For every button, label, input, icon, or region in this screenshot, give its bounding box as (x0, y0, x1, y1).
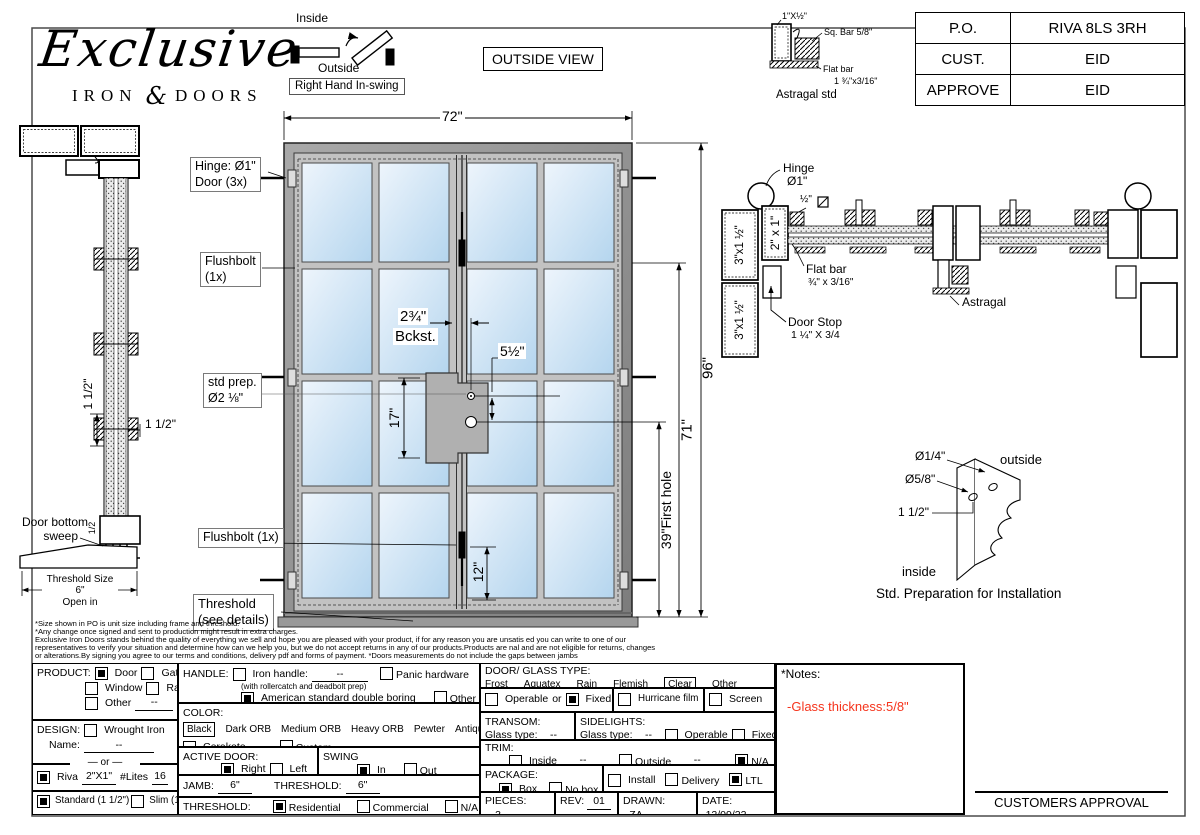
color-dark-orb[interactable]: Dark ORB (225, 723, 271, 736)
checkbox-american-boring[interactable] (241, 692, 254, 703)
pieces-section: PIECES: 3 (480, 792, 555, 815)
handle-section: HANDLE: Iron handle: -- Panic hardware (… (178, 663, 480, 703)
prep-title: Std. Preparation for Installation (876, 586, 1061, 602)
po-value: RIVA 8LS 3RH (1011, 13, 1185, 44)
swing-inside-label: Inside (296, 12, 328, 26)
flushbolt-callout-top: Flushbolt(1x) (200, 252, 261, 287)
hinge-callout: Hinge: Ø1"Door (3x) (190, 157, 261, 192)
checkbox-handle-other[interactable] (434, 691, 447, 703)
notes-glass-thickness: -Glass thickness:5/8" (787, 699, 959, 716)
transom-section: TRANSOM: Glass type: -- (480, 712, 575, 740)
threshold-size-label: Threshold Size (42, 574, 118, 586)
threshold-size-value: 6" (42, 585, 118, 597)
glass-aquatex[interactable]: Aquatex (524, 678, 561, 688)
rs-half-square: ½" (800, 194, 812, 206)
checkbox-window[interactable] (85, 682, 98, 695)
notes-title: *Notes: (781, 667, 959, 683)
astragal-sqbar-label: Sq. Bar 5/8" (824, 27, 872, 37)
jamb-section: JAMB: 6" THRESHOLD: 6" (178, 775, 480, 797)
product-section: PRODUCT: Door Gate Window Railling Other… (32, 663, 178, 720)
dim-39-first-hole: 39"First hole (658, 471, 674, 549)
rs-astragal-label: Astragal (962, 296, 1006, 310)
jamb-value[interactable]: 6" (218, 779, 252, 794)
dim-71: 71" (679, 419, 696, 441)
rs-hinge-dia: Ø1" (787, 175, 807, 189)
checkbox-railling[interactable] (146, 682, 159, 695)
trim-outside-value[interactable]: -- (675, 754, 719, 765)
checkbox-package-nobox[interactable] (549, 782, 562, 792)
rev-value[interactable]: 01 (587, 795, 611, 810)
astragal-flatbar-label: Flat bar (823, 64, 854, 74)
dim-96: 96" (700, 357, 717, 379)
glass-type-section: DOOR/ GLASS TYPE: Frost Aquatex Rain Fle… (480, 663, 775, 688)
glass-flemish[interactable]: Flemish (613, 678, 648, 688)
trim-inside-value[interactable]: -- (561, 754, 605, 765)
screen-section: Screen (704, 688, 775, 712)
po-table: P.O. RIVA 8LS 3RH CUST. EID APPROVE EID (915, 12, 1185, 106)
color-antique-gold[interactable]: Antique gold (455, 723, 480, 736)
riva-lites-value[interactable]: 16 (152, 770, 168, 785)
astragal-title: Astragal std (776, 89, 837, 102)
checkbox-door[interactable] (95, 667, 108, 680)
design-name-value[interactable]: -- (84, 739, 154, 754)
hurricane-section: Hurricane film (613, 688, 704, 712)
dim-5-half: 5½" (498, 343, 526, 359)
date-value[interactable]: 12/09/22 (702, 809, 750, 815)
checkbox-product-other[interactable] (85, 697, 98, 710)
trim-section: TRIM: Inside -- Outside -- N/A (480, 740, 775, 765)
sidelights-glass-value[interactable]: -- (637, 729, 661, 740)
transom-glass-value[interactable]: -- (542, 729, 566, 740)
logo-ampersand-icon: & (146, 82, 167, 110)
checkbox-commercial[interactable] (357, 800, 370, 813)
prep-dia-fiveeighths: Ø5/8" (905, 473, 935, 487)
checkbox-iron-handle[interactable] (233, 668, 246, 681)
checkbox-slim[interactable] (131, 795, 144, 808)
checkbox-package-box[interactable] (499, 783, 512, 792)
checkbox-riva[interactable] (37, 771, 50, 784)
lock-block (426, 373, 488, 463)
approve-label: APPROVE (916, 75, 1011, 106)
flushbolt-callout-bottom: Flushbolt (1x) (198, 528, 284, 548)
rs-doorstop-dim: 1 ¼" X 3/4 (791, 329, 840, 341)
checkbox-sidelight-operable[interactable] (665, 729, 678, 740)
prep-dia-quarter: Ø1/4" (915, 450, 945, 464)
checkbox-sidelight-fixed[interactable] (732, 729, 745, 740)
rs-jamb-a-label: 3"x1 ½" (734, 225, 746, 265)
checkbox-trim-inside[interactable] (509, 755, 522, 765)
glass-other[interactable]: Other (712, 678, 737, 688)
color-heavy-orb[interactable]: Heavy ORB (351, 723, 404, 736)
product-other-value[interactable]: -- (135, 696, 173, 711)
date-section: DATE: 12/09/22 (697, 792, 775, 815)
left-dim-horizontal: 1 1/2" (145, 418, 176, 432)
checkbox-custom-color[interactable] (280, 740, 293, 747)
astragal-dim-label: 1"X½" (782, 11, 807, 21)
rs-doorstop-label: Door Stop (788, 316, 842, 330)
rs-flatbar-label: Flat bar (806, 263, 847, 277)
rs-flatbar-dim: ¾" x 3/16" (808, 277, 853, 289)
checkbox-gate[interactable] (141, 667, 154, 680)
checkbox-residential[interactable] (273, 800, 286, 813)
checkbox-fixed[interactable] (566, 693, 579, 706)
glass-frost[interactable]: Frost (485, 678, 508, 688)
astragal-flatdim-label: 1 ¾"x3/16" (834, 76, 877, 86)
logo-doors: DOORS (175, 86, 263, 106)
door-elevation-drawing (260, 111, 708, 627)
dim-72: 72" (440, 108, 465, 124)
swing-section: SWING In Out (318, 747, 480, 775)
pieces-value[interactable]: 3 (485, 809, 511, 815)
swing-tag: Right Hand In-swing (289, 78, 405, 95)
logo-iron: IRON (72, 86, 138, 106)
dim-17: 17" (386, 408, 402, 429)
checkbox-screen[interactable] (709, 693, 722, 706)
cust-value: EID (1011, 44, 1185, 75)
logo-script: Exclusive (36, 20, 303, 78)
color-medium-orb[interactable]: Medium ORB (281, 723, 341, 736)
checkbox-swing-out[interactable] (404, 763, 417, 775)
checkbox-ltl[interactable] (729, 773, 742, 786)
package-section: PACKAGE: Box No box (480, 765, 603, 792)
disclaimer-line5: or alterations.By signing you agree to o… (35, 651, 578, 660)
swing-outside-label: Outside (318, 62, 359, 76)
checkbox-standard[interactable] (37, 795, 50, 808)
sweep-half-dim: 1/2 (87, 522, 97, 535)
active-door-section: ACTIVE DOOR: Right Left (178, 747, 318, 775)
approve-value: EID (1011, 75, 1185, 106)
operable-section: Operable or Fixed (480, 688, 613, 712)
rs-jamb-b-label: 3"x1 ½" (734, 300, 746, 340)
drawing-sheet: Exclusive IRON & DOORS Inside Outside Ri… (0, 0, 1200, 835)
std-prep-callout: std prep.Ø2 ⅛" (203, 373, 262, 408)
prep-outside-label: outside (1000, 453, 1042, 468)
riva-size-value[interactable]: 2"X1" (82, 770, 116, 785)
dim-12: 12" (470, 562, 486, 583)
glass-rain[interactable]: Rain (576, 678, 597, 688)
drawn-value[interactable]: ZA (623, 809, 649, 815)
glass-clear-selected[interactable]: Clear (664, 677, 696, 688)
notes-section: *Notes: -Glass thickness:5/8" (775, 663, 965, 815)
color-section: COLOR: Black Dark ORB Medium ORB Heavy O… (178, 703, 480, 747)
checkbox-trim-outside[interactable] (619, 754, 632, 765)
checkbox-trim-na[interactable] (735, 754, 748, 765)
checkbox-wrought-iron[interactable] (84, 724, 97, 737)
checkbox-threshold-na[interactable] (445, 800, 458, 813)
door-bottom-sweep-label: Door bottomsweep (22, 516, 78, 544)
customers-approval-label: CUSTOMERS APPROVAL (975, 796, 1168, 811)
checkbox-panic[interactable] (380, 667, 393, 680)
threshold-type-section: THRESHOLD: Residential Commercial N/A (178, 797, 480, 815)
backset-value: 2¾" (398, 308, 428, 325)
po-label: P.O. (916, 13, 1011, 44)
swing-legend-glyph (291, 31, 394, 65)
iron-handle-value[interactable]: -- (312, 668, 368, 683)
checkbox-install[interactable] (608, 774, 621, 787)
design-or-separator: — or — (70, 757, 140, 769)
product-title: PRODUCT: (37, 667, 91, 681)
checkbox-hurricane[interactable] (618, 693, 631, 706)
drawn-section: DRAWN: ZA (618, 792, 697, 815)
cust-label: CUST. (916, 44, 1011, 75)
rev-section: REV: 01 (555, 792, 618, 815)
signature-line[interactable] (975, 791, 1168, 793)
jamb-threshold-value[interactable]: 6" (346, 779, 380, 794)
shipping-section: Install Delivery LTL (603, 765, 775, 792)
prep-dim-onehalf: 1 1/2" (898, 506, 929, 520)
sidelights-section: SIDELIGHTS: Glass type: -- Operable Fixe… (575, 712, 775, 740)
color-pewter[interactable]: Pewter (414, 723, 445, 736)
rs-tube-label: 2" x 1" (768, 216, 782, 251)
checkbox-delivery[interactable] (665, 773, 678, 786)
checkbox-active-left[interactable] (270, 763, 283, 775)
threshold-open-label: Open in (42, 597, 118, 609)
color-black-selected[interactable]: Black (183, 722, 215, 737)
prep-inside-label: inside (902, 565, 936, 580)
std-prep-drawing (932, 459, 1020, 580)
backset-label: Bckst. (393, 328, 438, 345)
checkbox-active-right[interactable] (221, 763, 234, 775)
checkbox-swing-in[interactable] (357, 764, 370, 775)
logo-subtitle: IRON & DOORS (72, 82, 263, 110)
checkbox-operable[interactable] (485, 693, 498, 706)
profile-section: Standard (1 1/2") Slim (1 1/4") (32, 791, 178, 815)
left-dim-vertical: 1 1/2" (81, 379, 95, 410)
view-tag: OUTSIDE VIEW (483, 47, 603, 71)
